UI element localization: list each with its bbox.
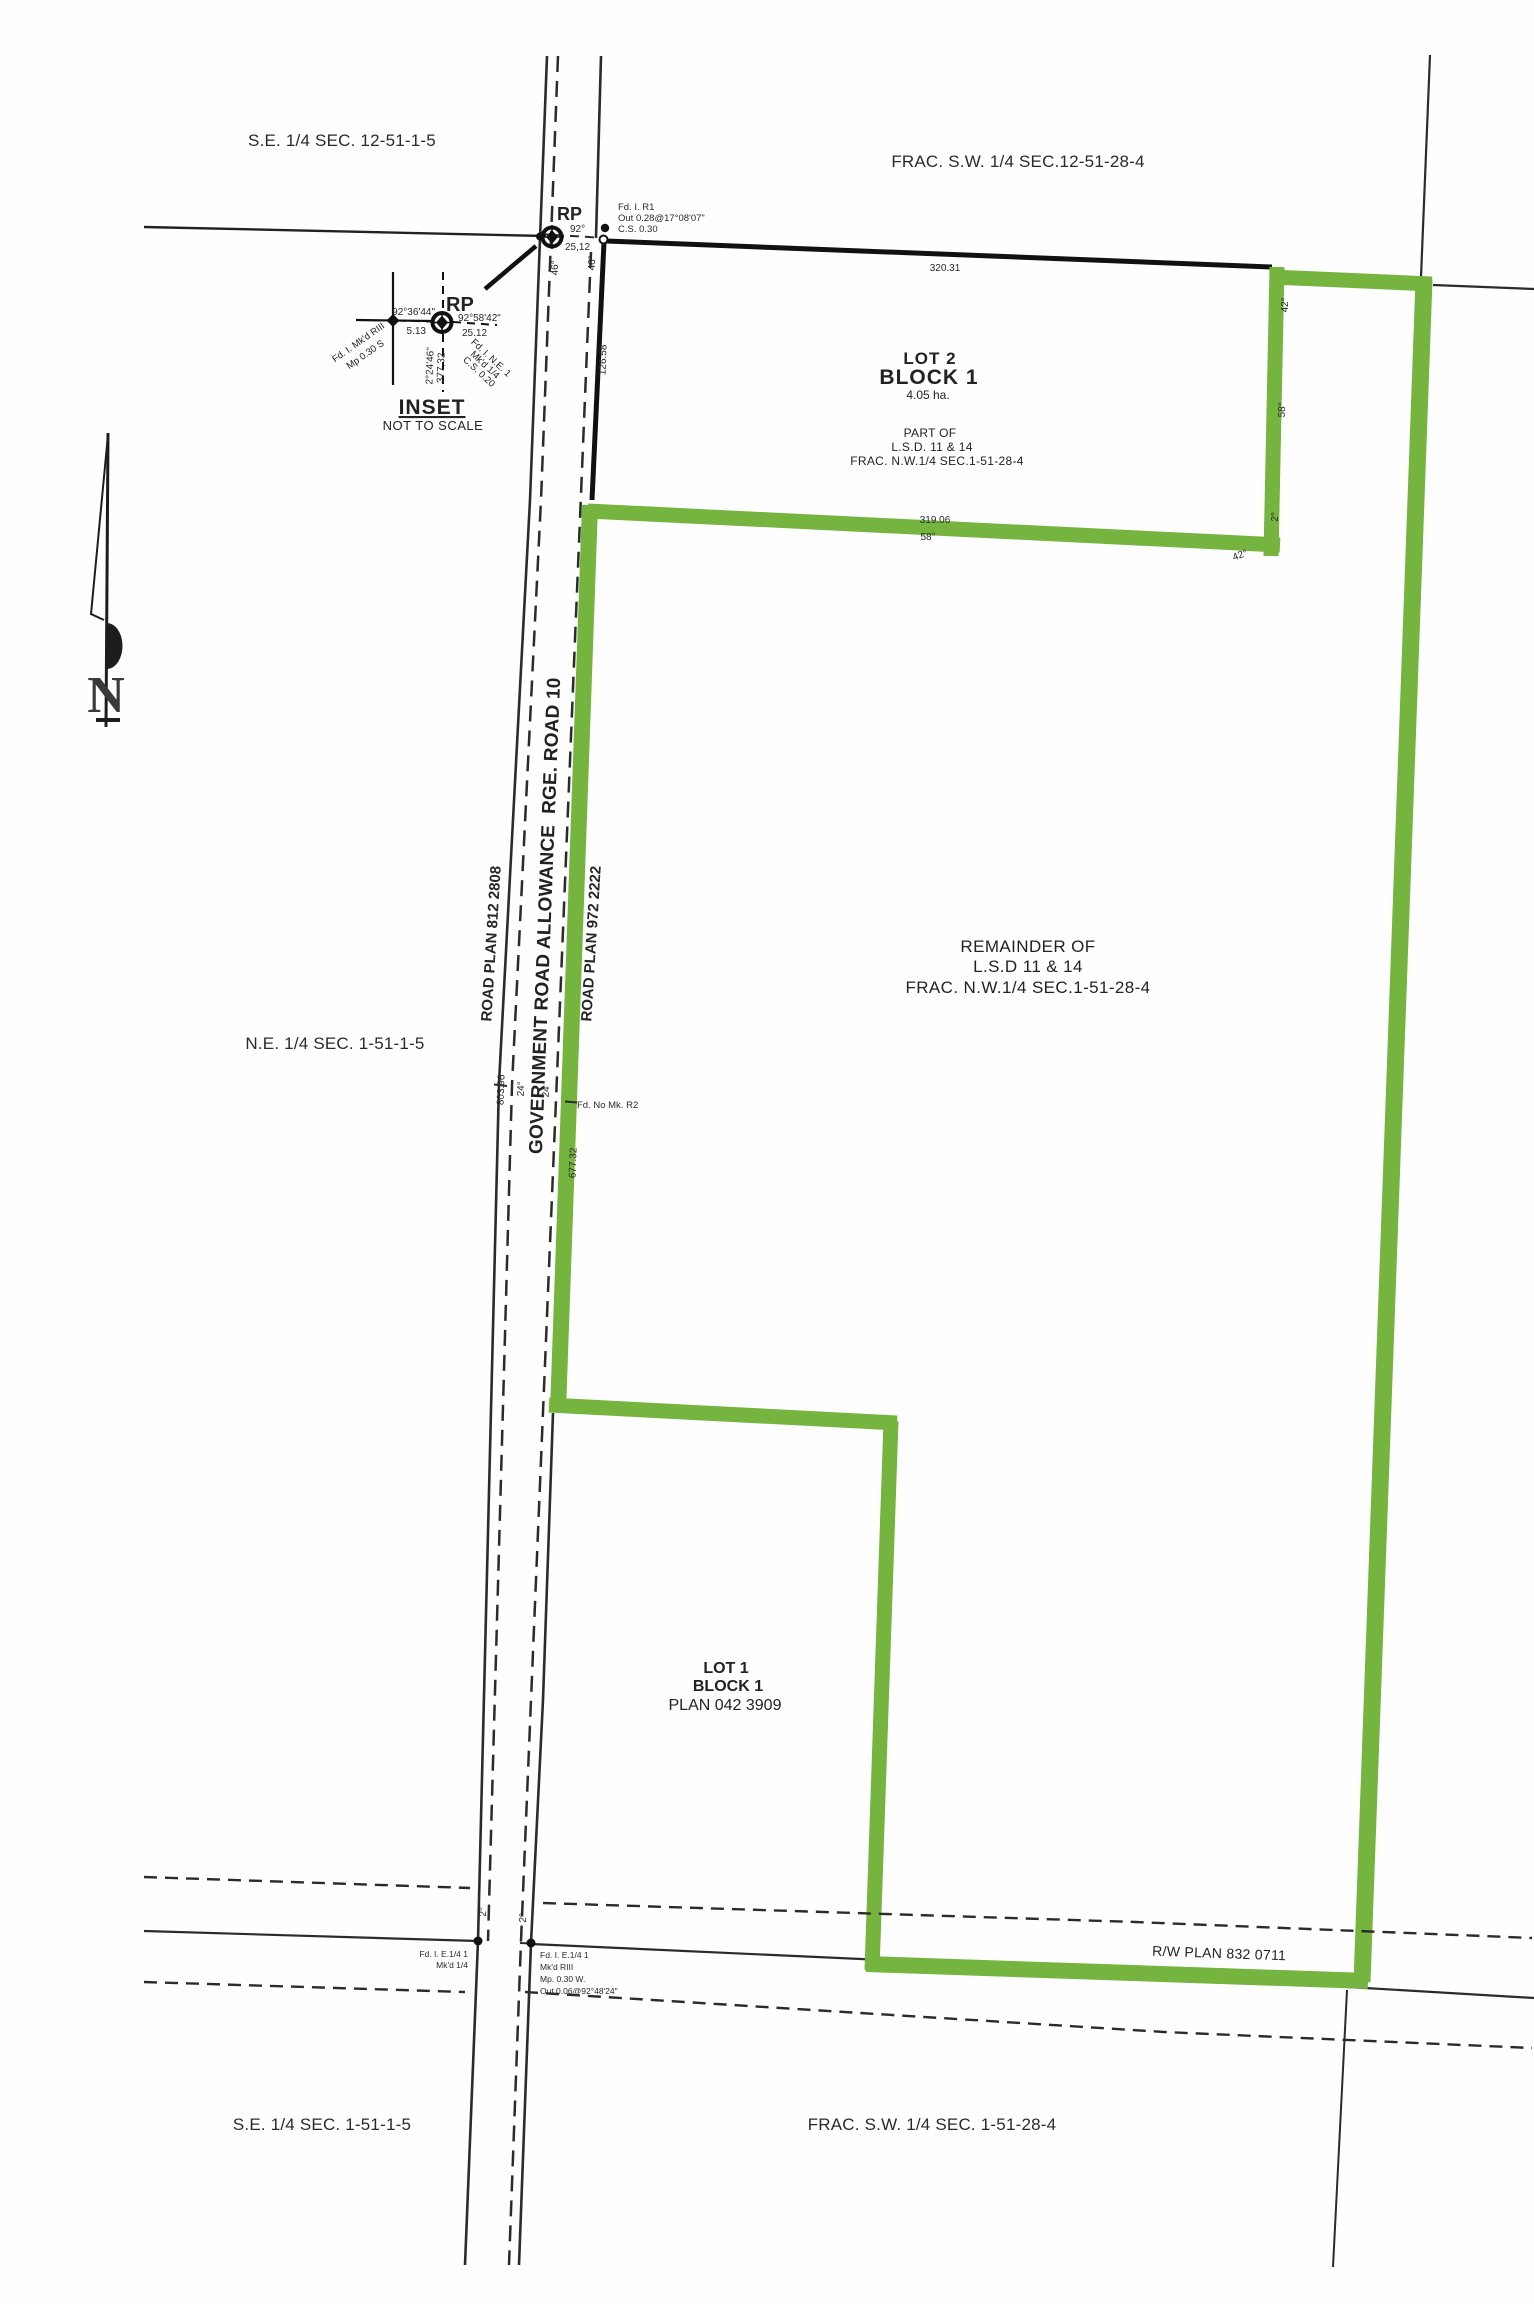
- svg-text:S.E. 1/4 SEC. 12-51-1-5: S.E. 1/4 SEC. 12-51-1-5: [248, 131, 436, 150]
- svg-text:Fd. I. R1: Fd. I. R1: [618, 202, 654, 213]
- svg-text:92°36'44": 92°36'44": [392, 307, 435, 318]
- svg-text:Mp. 0.30 W.: Mp. 0.30 W.: [540, 1974, 585, 1984]
- svg-text:58°: 58°: [920, 532, 935, 543]
- svg-text:803.96: 803.96: [495, 1074, 507, 1105]
- svg-text:FRAC. N.W.1/4 SEC.1-51-28-4: FRAC. N.W.1/4 SEC.1-51-28-4: [850, 454, 1024, 468]
- svg-text:FRAC. N.W.1/4 SEC.1-51-28-4: FRAC. N.W.1/4 SEC.1-51-28-4: [905, 978, 1150, 997]
- svg-text:46°: 46°: [587, 255, 599, 270]
- svg-text:2°: 2°: [518, 1913, 529, 1923]
- svg-text:92°: 92°: [570, 224, 585, 235]
- svg-text:2°: 2°: [1270, 512, 1281, 522]
- svg-text:NOT TO SCALE: NOT TO SCALE: [383, 418, 484, 433]
- svg-text:24: 24: [541, 1086, 552, 1098]
- svg-text:FRAC. S.W. 1/4 SEC. 1-51-28-4: FRAC. S.W. 1/4 SEC. 1-51-28-4: [808, 2115, 1057, 2134]
- svg-text:677.32: 677.32: [567, 1147, 579, 1178]
- svg-text:LOT 1: LOT 1: [703, 1660, 748, 1677]
- svg-text:58°: 58°: [1277, 402, 1289, 417]
- svg-text:S.E. 1/4 SEC. 1-51-1-5: S.E. 1/4 SEC. 1-51-1-5: [233, 2115, 411, 2134]
- svg-text:BLOCK 1: BLOCK 1: [879, 366, 978, 389]
- svg-text:Out 0.06@92°48'24": Out 0.06@92°48'24": [540, 1986, 618, 1996]
- svg-text:Fd. No Mk. R2: Fd. No Mk. R2: [577, 1100, 638, 1111]
- svg-text:319.06: 319.06: [920, 515, 951, 526]
- svg-text:N: N: [87, 667, 125, 724]
- svg-text:4.05 ha.: 4.05 ha.: [906, 388, 949, 402]
- svg-text:C.S. 0.30: C.S. 0.30: [618, 224, 658, 235]
- svg-text:RP: RP: [557, 204, 582, 224]
- svg-text:PART OF: PART OF: [904, 426, 957, 440]
- svg-text:25,12: 25,12: [565, 242, 590, 253]
- svg-text:REMAINDER OF: REMAINDER OF: [960, 937, 1095, 956]
- svg-text:126.58: 126.58: [597, 344, 609, 375]
- svg-text:Mk'd RIII: Mk'd RIII: [540, 1962, 573, 1972]
- svg-text:L.S.D 11 & 14: L.S.D 11 & 14: [973, 957, 1083, 976]
- svg-text:BLOCK 1: BLOCK 1: [693, 1678, 763, 1695]
- svg-text:PLAN 042 3909: PLAN 042 3909: [669, 1697, 782, 1714]
- svg-text:Fd. I. E.1/4 1: Fd. I. E.1/4 1: [419, 1949, 468, 1959]
- svg-text:92°58'42": 92°58'42": [458, 313, 501, 324]
- svg-text:2°: 2°: [478, 1907, 489, 1917]
- svg-text:377,32: 377,32: [435, 352, 447, 383]
- svg-text:L.S.D. 11 & 14: L.S.D. 11 & 14: [891, 440, 972, 454]
- svg-text:Mk'd 1/4: Mk'd 1/4: [436, 1960, 468, 1970]
- svg-text:FRAC. S.W. 1/4 SEC.12-51-28-4: FRAC. S.W. 1/4 SEC.12-51-28-4: [891, 152, 1144, 171]
- svg-text:24°: 24°: [516, 1081, 528, 1096]
- svg-text:Fd. I. E.1/4 1: Fd. I. E.1/4 1: [540, 1950, 589, 1960]
- svg-text:N.E. 1/4 SEC. 1-51-1-5: N.E. 1/4 SEC. 1-51-1-5: [245, 1034, 424, 1053]
- svg-text:5.13: 5.13: [407, 326, 427, 337]
- svg-text:46°: 46°: [550, 260, 562, 275]
- svg-text:INSET: INSET: [399, 396, 466, 419]
- svg-text:320.31: 320.31: [930, 263, 961, 274]
- svg-text:Out 0.28@17°08'07": Out 0.28@17°08'07": [618, 213, 705, 224]
- svg-text:42°: 42°: [1280, 297, 1292, 312]
